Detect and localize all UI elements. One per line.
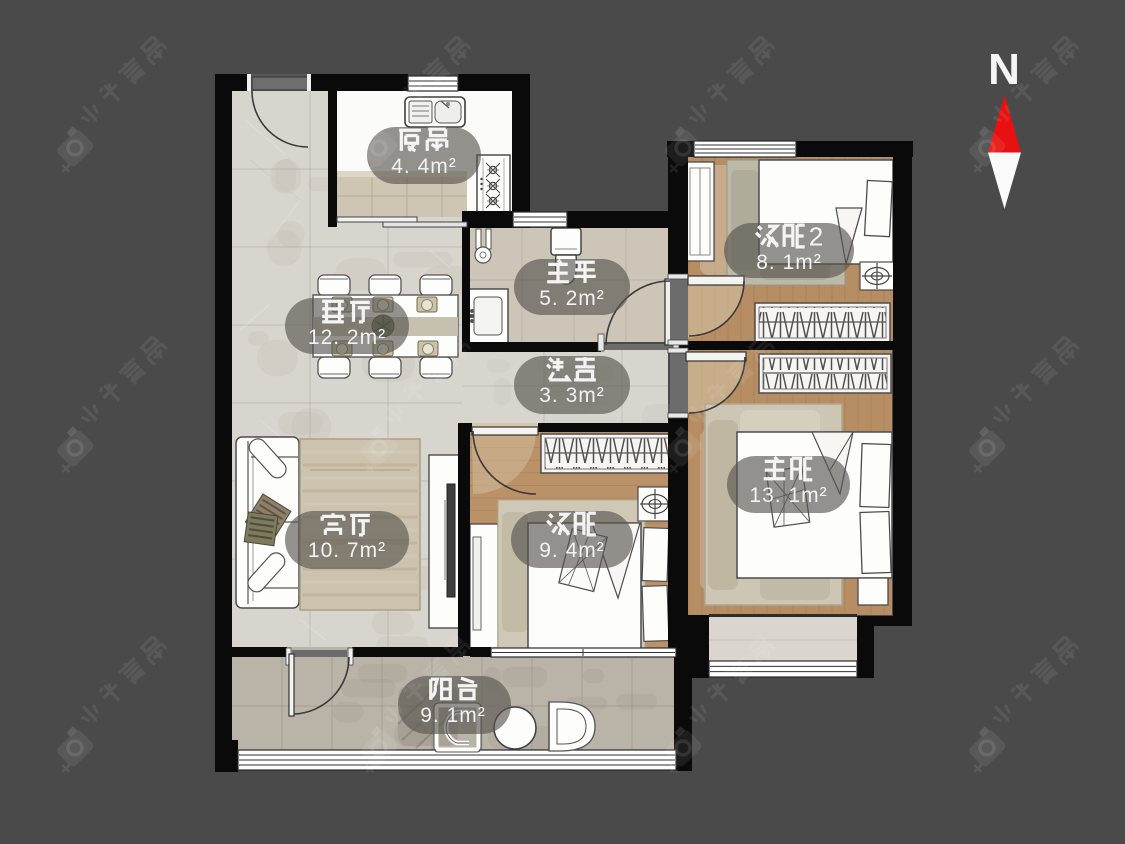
svg-text:13. 1m²: 13. 1m² — [749, 484, 827, 507]
svg-text:5. 2m²: 5. 2m² — [539, 287, 605, 310]
svg-text:9. 4m²: 9. 4m² — [539, 539, 605, 562]
svg-text:3. 3m²: 3. 3m² — [539, 384, 605, 407]
svg-text:N: N — [988, 45, 1020, 94]
svg-text:10. 7m²: 10. 7m² — [308, 539, 386, 562]
svg-text:8. 1m²: 8. 1m² — [756, 251, 822, 274]
svg-text:2: 2 — [809, 221, 823, 251]
svg-text:12. 2m²: 12. 2m² — [308, 326, 386, 349]
svg-text:4. 4m²: 4. 4m² — [391, 155, 457, 178]
svg-text:9. 1m²: 9. 1m² — [420, 704, 486, 727]
